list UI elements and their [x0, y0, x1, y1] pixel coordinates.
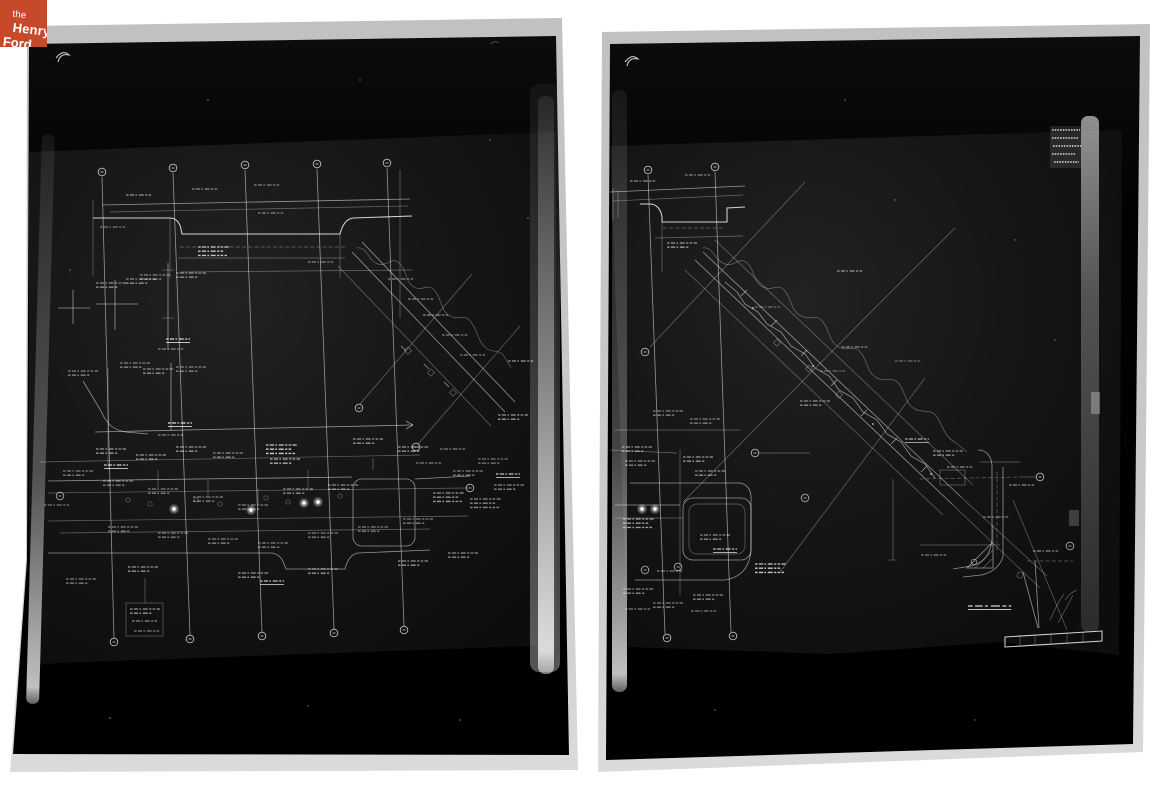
- scan-page: the Henry Ford: [0, 0, 1175, 800]
- henry-ford-logo-text: the Henry Ford: [0, 0, 47, 47]
- drawing-negative-right: [595, 20, 1155, 776]
- film-frame-left: [10, 18, 578, 772]
- drawing-negative-left: [8, 18, 580, 774]
- henry-ford-logo: the Henry Ford: [0, 0, 47, 47]
- film-frame-right: [598, 24, 1150, 772]
- stamp-patch: [1050, 126, 1082, 168]
